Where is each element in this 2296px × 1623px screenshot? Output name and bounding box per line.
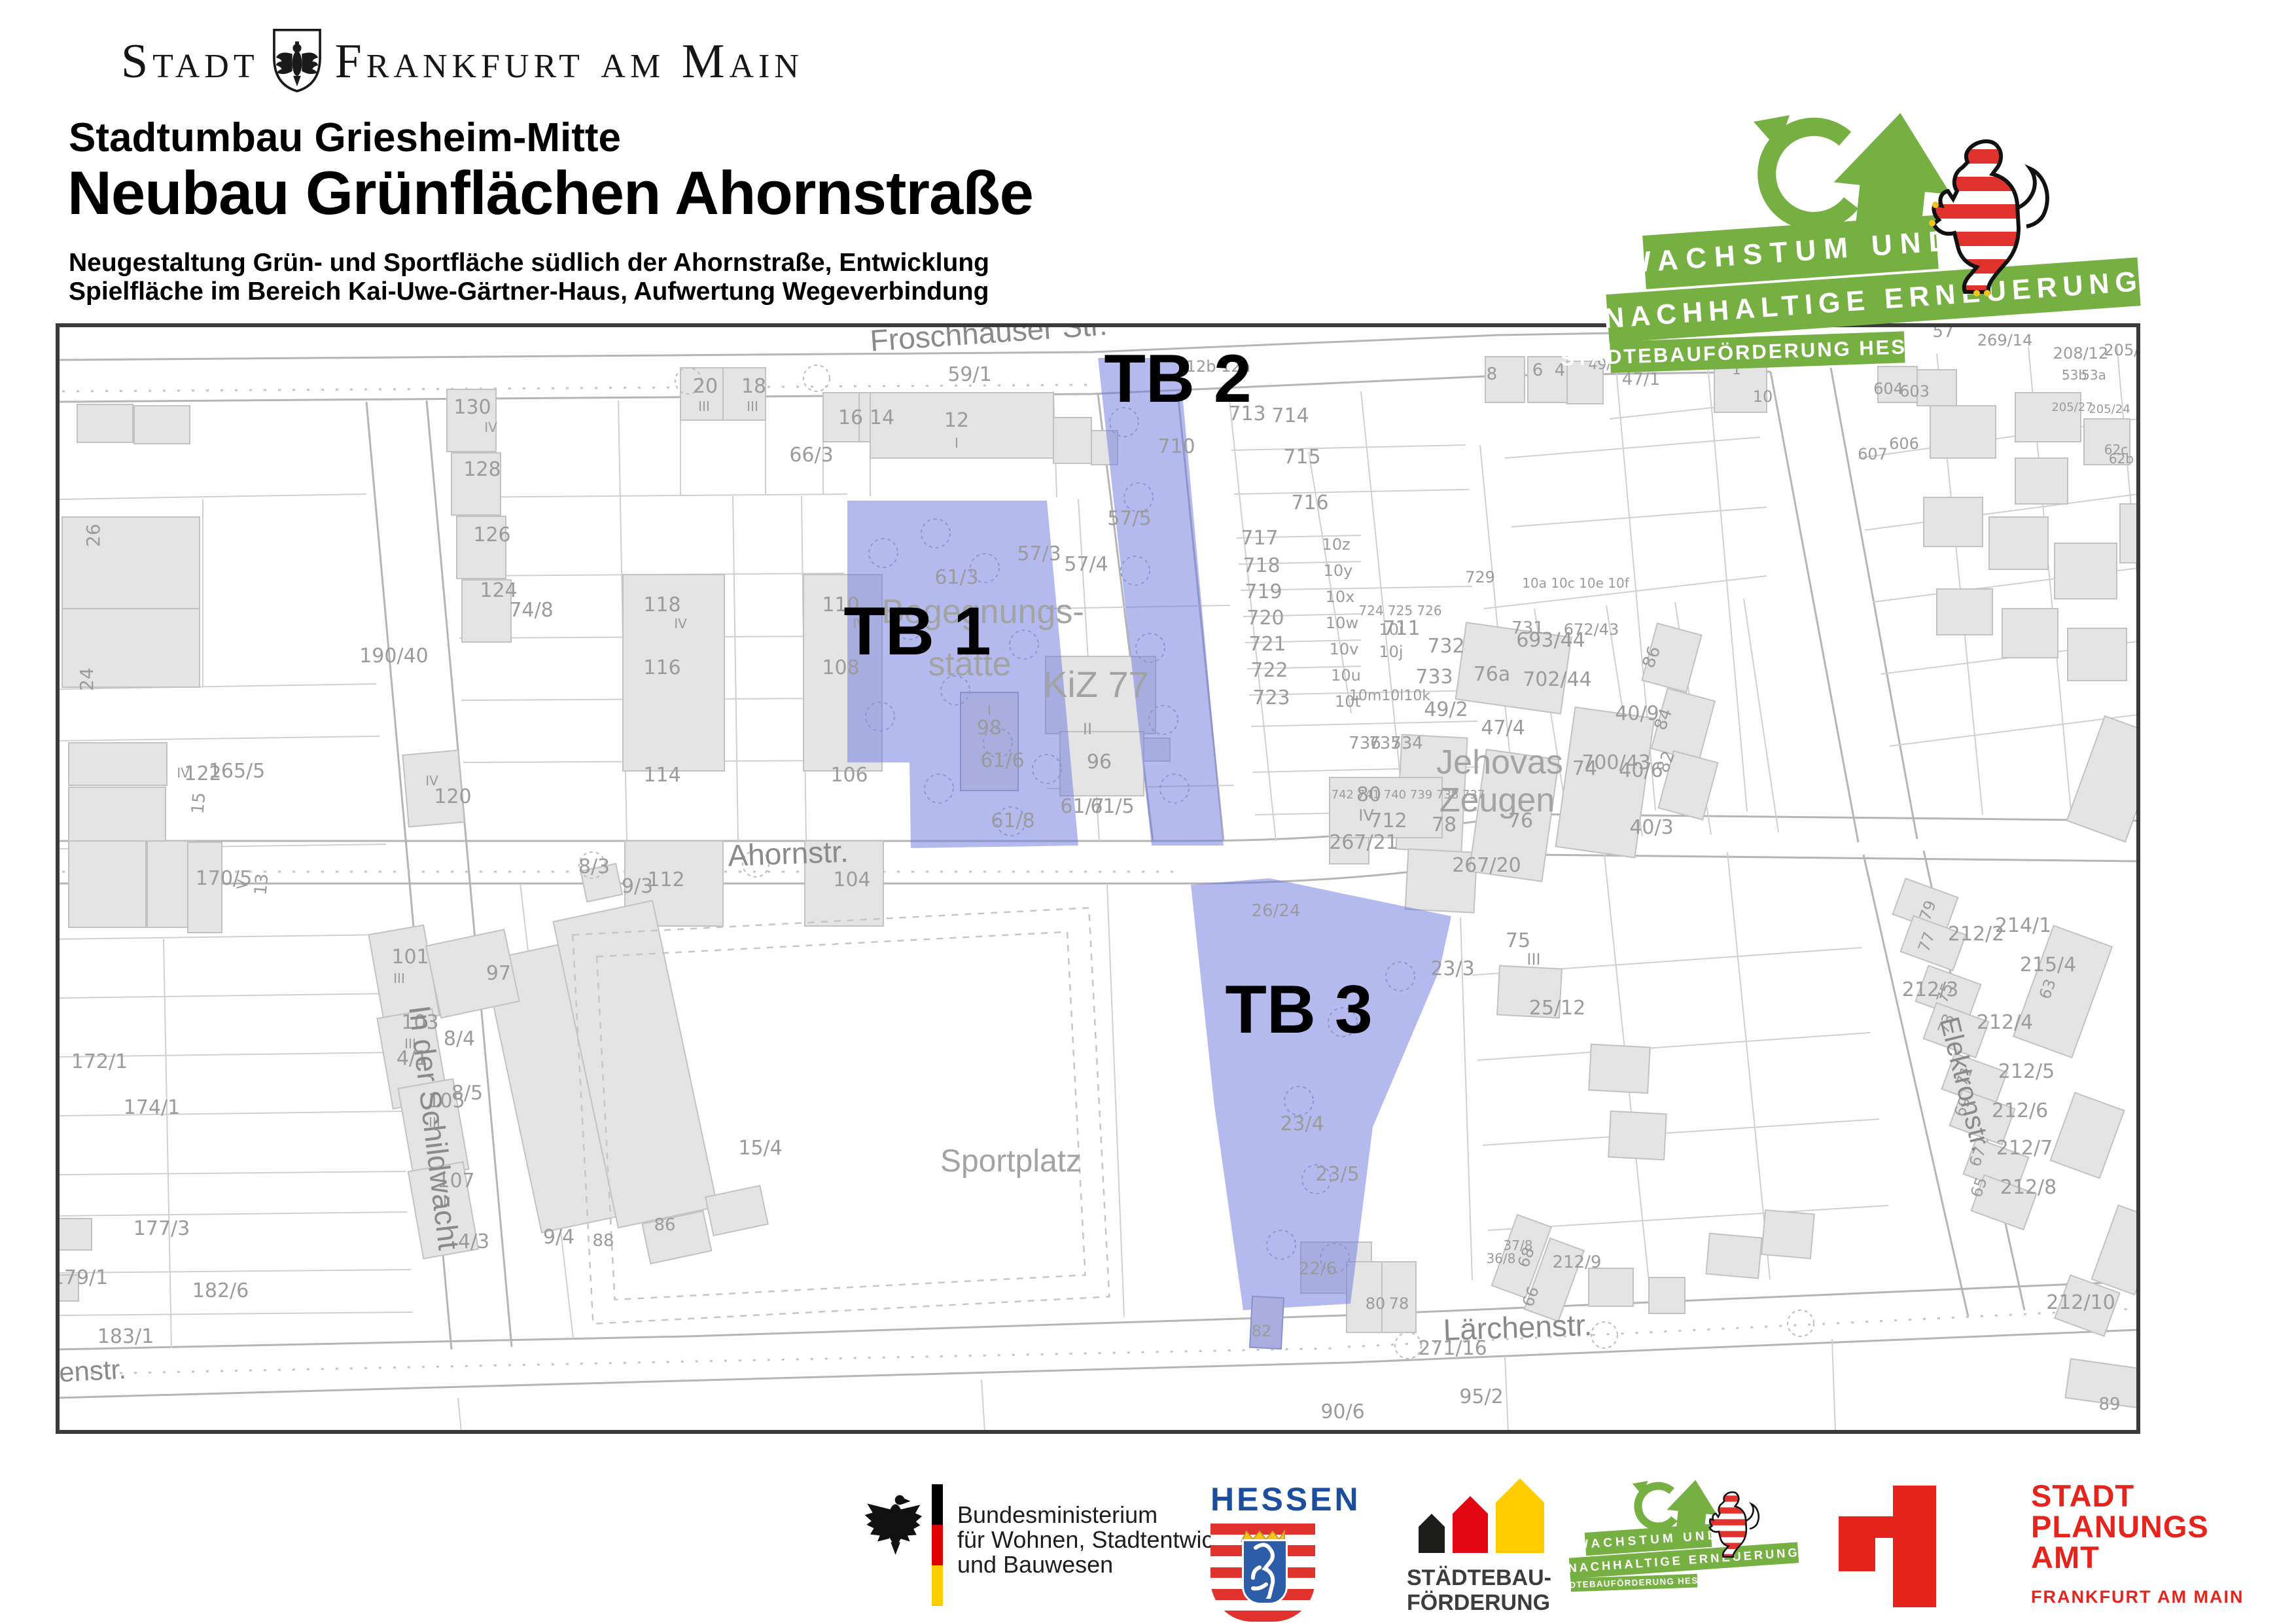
parcel-label: 205/27 [2051,401,2093,414]
parcel-label: 10i [1379,620,1403,639]
parcel-label: 212/5 [1998,1060,2055,1083]
parcel-label: 80 [1356,783,1381,806]
plan-sheet: 2018IIIIII161466/312I59/157/557/457/3710… [0,0,2296,1623]
parcel-label: 10u [1331,666,1361,685]
subtitle-line2: Spielfläche im Bereich Kai-Uwe-Gärtner-H… [69,279,989,304]
parcel-label: 10z [1322,535,1350,554]
parcel-label: 606 [1889,435,1919,453]
funding-line2: FÖRDERUNG [1407,1590,1623,1615]
parcel-label: IV [674,616,687,632]
hessen-lion-icon [1569,1476,1800,1592]
parcel-label: 212/7 [1996,1137,2053,1160]
parcel-label: 10v [1330,640,1359,658]
parcel-label: 88 [592,1231,614,1251]
parcel-label: 57/4 [1064,553,1108,576]
parcel-label: 23/5 [1315,1163,1359,1186]
hessen-inner-shield [1242,1539,1288,1605]
parcel-label: 120 [434,785,471,808]
parcel-label: IV [425,773,438,789]
parcel-label: 89 [2098,1395,2120,1414]
hessen-wordmark: HESSEN [1210,1480,1335,1518]
parcel-label: 96 [1087,751,1112,774]
city-frankfurt-logo: Stadt Frankfurt am Main [121,27,804,96]
parcel-label: II [1083,720,1092,738]
flag-black [932,1484,943,1525]
parcel-label: 215/4 [2020,954,2076,976]
parcel-label: 714 [1271,404,1309,427]
parcel-label: 10w [1326,614,1358,632]
parcel-label: 61/8 [991,810,1034,832]
parcel-label: 126 [473,524,510,546]
parcel-label: 172/1 [71,1050,128,1073]
parcel-label: V [234,879,251,890]
spa-sub: FRANKFURT AM MAIN [2031,1587,2244,1607]
parcel-label: 23/3 [1430,957,1474,980]
spa-line1: STADT [2031,1480,2244,1511]
parcel-label: 75 [1506,929,1530,952]
parcel-label: 8/4 [444,1027,475,1050]
parcel-label: 734 [1390,734,1423,753]
parcel-label: 49/2 [1424,698,1468,721]
place-label: Sportplatz [940,1144,1082,1179]
parcel-label: III [698,399,710,414]
bund-ministry-logo: Bundesministerium für Wohnen, Stadtentwi… [862,1484,1270,1606]
subtitle-line1: Neugestaltung Grün- und Sportfläche südl… [69,250,989,276]
tb-area-label: TB 3 [1225,972,1372,1048]
parcel-label: 10j [1379,643,1403,661]
parcel-label: 59/1 [947,363,991,386]
parcel-label: 267/20 [1452,854,1521,877]
parcel-label: 26/24 [1252,901,1301,921]
city-logo-text-frankfurt: Frankfurt am Main [335,37,804,86]
parcel-label: 122 [184,762,221,785]
parcel-label: 267/21 [1329,831,1398,854]
parcel-label: 98 [977,717,1002,740]
parcel-label: 9/4 [543,1226,574,1249]
parcel-label: 10 [1753,387,1773,406]
parcel-label: 10m10l10k [1349,688,1431,704]
parcel-label: 212/6 [1992,1099,2048,1122]
parcel-label: 80 [1366,1294,1386,1313]
street-label: Lärchenstr. [1443,1308,1593,1347]
parcel-label: 12 [944,409,969,432]
parcel-label: 90/6 [1320,1400,1364,1423]
parcel-label: 106 [830,764,868,787]
stadtplanungsamt-glyph-icon [1837,1480,2001,1611]
place-label: Zeugen [1439,781,1555,819]
parcel-label: 116 [643,656,680,679]
parcel-label: 86 [654,1215,675,1235]
parcel-label: 603 [1899,382,1930,401]
parcel-label: 78 [1389,1294,1409,1313]
parcel-label: 26 [82,524,104,547]
parcel-label: 13 [251,873,273,897]
street-label: Ahornstr. [728,834,849,872]
parcel-label: 712 [1369,810,1407,832]
parcel-label: 10y [1324,562,1353,580]
parcel-label: 212/8 [2000,1176,2057,1199]
parcel-label: 179/1 [52,1266,108,1289]
parcel-label: 721 [1248,633,1286,656]
stadtplanungsamt-logo: STADT PLANUNGS AMT FRANKFURT AM MAIN [1837,1480,2244,1611]
parcel-label: 190/40 [359,645,429,668]
parcel-label: 182/6 [192,1279,249,1302]
map-frame [58,325,2138,1432]
hessen-lion-icon [1606,105,2143,373]
parcel-label: 8/3 [578,855,610,878]
parcel-label: 672/43 [1564,620,1619,639]
parcel-label: 62b [2109,451,2134,467]
parcel-label: 719 [1245,580,1282,603]
city-logo-text-stadt: Stadt [121,37,259,86]
parcel-label: 733 [1415,666,1453,688]
parcel-label: 10a 10c 10e 10f [1522,575,1629,591]
parcel-label: 25/12 [1529,997,1585,1020]
parcel-label: IV [484,419,497,435]
parcel-label: 16 [838,406,863,429]
program-title: Stadtumbau Griesheim-Mitte [69,116,621,159]
parcel-label: 212/9 [1553,1253,1602,1272]
parcel-label: III [393,971,405,986]
parcel-label: 722 [1250,659,1288,682]
tb-area-label: TB 2 [1104,341,1251,417]
flag-red [932,1525,943,1565]
parcel-label: 6 [1532,361,1544,380]
parcel-label: I [955,435,959,451]
street-label: chenstr. [29,1353,127,1389]
page-title: Neubau Grünflächen Ahornstraße [67,162,1033,224]
hessen-logo: HESSEN [1210,1480,1335,1622]
parcel-label: 205/24 [2089,402,2130,416]
parcel-label: 47/4 [1481,717,1525,740]
parcel-label: 97 [486,962,511,985]
parcel-label: 720 [1246,607,1284,630]
parcel-label: 57/5 [1107,507,1151,530]
parcel-label: 23/4 [1280,1113,1324,1135]
parcel-label: 174/1 [124,1096,180,1119]
spa-line2: PLANUNGS [2031,1511,2244,1542]
wachstum-erneuerung-logo: WACHSTUM UND NACHHALTIGE ERNEUERUNG STÄD… [1606,105,2143,373]
parcel-label: 24 [76,668,97,691]
flag-gold [932,1565,943,1606]
parcel-label: III [747,399,758,414]
german-flag-bar [932,1484,943,1606]
parcel-label: 702/44 [1523,668,1592,691]
parcel-label: 715 [1283,446,1320,469]
parcel-label: 716 [1291,491,1328,514]
parcel-label: 66/3 [789,444,833,467]
parcel-label: 104 [833,868,870,891]
parcel-label: 112 [647,868,684,891]
parcel-label: IV [177,765,190,781]
parcel-label: 177/3 [133,1217,190,1240]
parcel-label: 15/4 [738,1137,782,1160]
parcel-label: 114 [643,764,680,787]
parcel-label: 717 [1241,527,1278,550]
tb-area-label: TB 1 [843,594,991,669]
parcel-label: 15 [188,792,210,815]
parcel-label: 95/2 [1459,1385,1503,1408]
parcel-label: 130 [453,396,491,419]
parcel-label: 82 [1252,1322,1272,1340]
parcel-label: 724 725 726 [1358,603,1441,618]
place-label: Jehovas [1436,743,1563,781]
parcel-label: 76a [1474,663,1511,686]
parcel-label: 718 [1243,554,1280,577]
parcel-label: 18 [741,375,766,398]
frankfurt-eagle-shield-icon [272,27,322,96]
wachstum-erneuerung-logo-small: WACHSTUM UND NACHHALTIGE ERNEUERUNG STÄD… [1569,1476,1800,1592]
parcel-label: 118 [643,594,680,616]
parcel-label: 212/4 [1977,1011,2033,1034]
parcel-label: 212/10 [2046,1291,2115,1314]
parcel-label: 214/1 [1995,914,2051,937]
parcel-label: 732 [1427,635,1464,658]
parcel-label: III [1527,950,1540,969]
parcel-label: 61/5 [1090,795,1134,818]
parcel-label: 10x [1326,588,1355,606]
parcel-label: 8 [1487,365,1498,384]
parcel-label: 604 [1873,380,1903,398]
parcel-label: 128 [463,458,501,481]
place-label: KiZ 77 [1043,664,1149,705]
parcel-label: 14 [870,406,894,429]
parcel-label: 57/3 [1017,543,1061,565]
parcel-label: 22/6 [1299,1259,1337,1279]
parcel-label: 61/3 [934,566,978,589]
spa-line3: AMT [2031,1542,2244,1573]
parcel-label: 61/6 [980,749,1024,772]
hessen-coat-of-arms-icon [1210,1524,1315,1622]
parcel-label: 74/8 [509,599,553,622]
parcel-label: 101 [391,946,429,969]
parcel-label: 729 [1465,568,1495,586]
parcel-label: 710 [1157,435,1195,458]
parcel-label: 723 [1252,687,1290,709]
parcel-label: 183/1 [97,1325,154,1348]
parcel-label: 40/3 [1629,816,1673,839]
parcel-label: 20 [693,375,718,398]
parcel-label: 607 [1858,445,1888,463]
three-houses-icon [1407,1476,1557,1553]
parcel-label: I [987,702,991,718]
bundesadler-icon [862,1484,923,1561]
